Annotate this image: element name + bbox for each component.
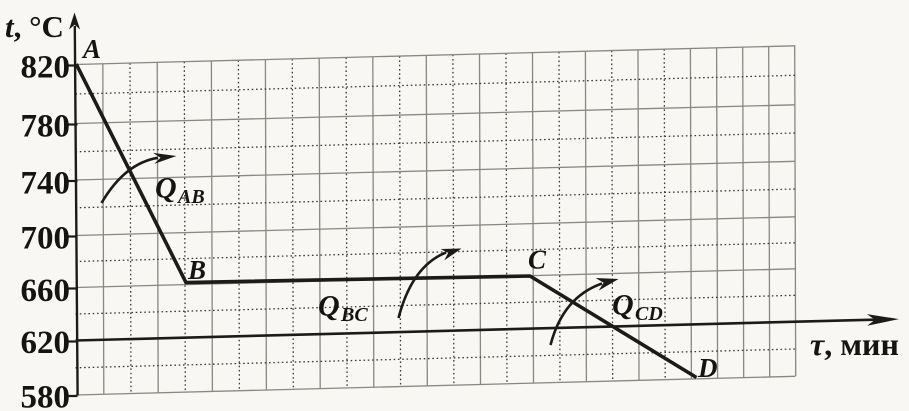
svg-text:Q: Q (318, 290, 340, 323)
svg-text:700: 700 (21, 221, 71, 257)
svg-text:CD: CD (635, 303, 663, 325)
svg-text:820: 820 (21, 50, 71, 86)
svg-text:Q: Q (155, 172, 177, 205)
svg-text:t, °C: t, °C (5, 9, 64, 44)
svg-text:Q: Q (612, 289, 634, 322)
svg-text:620: 620 (21, 325, 71, 361)
svg-text:A: A (81, 34, 101, 64)
svg-text:D: D (697, 353, 718, 383)
svg-text:AB: AB (176, 186, 205, 208)
svg-text:C: C (528, 245, 547, 275)
svg-text:740: 740 (21, 166, 71, 202)
svg-text:τ, мин: τ, мин (810, 326, 899, 362)
svg-text:660: 660 (21, 273, 71, 309)
svg-text:B: B (187, 255, 206, 285)
svg-text:580: 580 (21, 380, 71, 411)
svg-text:780: 780 (21, 109, 71, 145)
svg-text:BC: BC (340, 304, 368, 326)
